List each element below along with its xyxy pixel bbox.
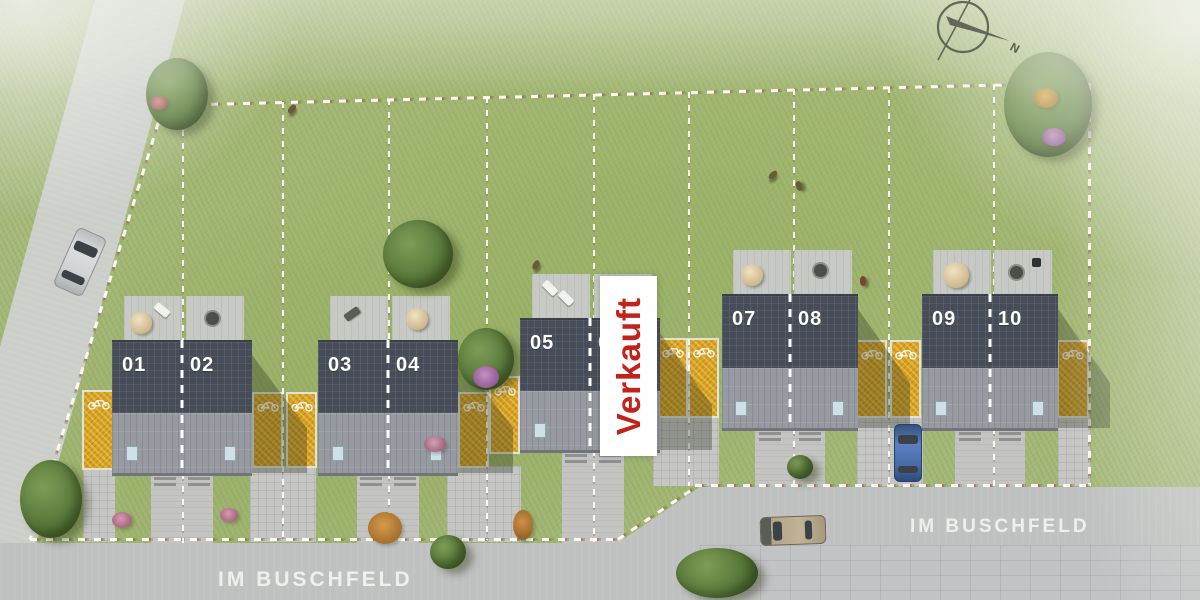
boundary-bottom-right [695,484,1090,487]
compass-north-label: N [1008,40,1022,56]
bicycle-icon [692,345,716,358]
parasol-icon [406,308,428,330]
shrub-orange [513,510,533,540]
flowers-pink [220,508,238,522]
plot-number-07: 07 [732,308,756,331]
plot-number-04: 04 [396,354,420,377]
bush [787,455,813,479]
terrace [124,296,182,340]
parking-pad [447,466,521,542]
lounger-icon [343,306,361,322]
car-blue [894,424,922,482]
car-windshield [898,435,918,444]
tree [383,220,453,288]
tree [20,460,82,538]
plot-divider [593,450,595,542]
plot-number-01: 01 [122,354,146,377]
skylight [735,401,747,416]
terrace [794,250,852,294]
duplex-divider-line [989,294,992,428]
car-rear-window [898,466,918,473]
flowers-pink [112,512,132,528]
skylight [332,446,344,461]
lounger-icon [542,280,559,297]
table-set-icon [814,264,827,277]
tree [146,58,208,130]
plot-divider [486,97,488,540]
terrace [330,296,388,340]
person-figure [860,276,866,286]
driveway [755,426,825,487]
duplex-divider-line [789,294,792,428]
plot-number-10: 10 [998,308,1022,331]
flowers-pink [424,436,446,452]
building-block-01-02: 01 02 [112,340,252,473]
parasol-icon [943,262,969,288]
compass-icon: N [898,0,1048,69]
flowers-red [150,96,168,110]
plot-number-05: 05 [530,332,554,355]
flowers-orange [1034,88,1058,108]
table-set-icon [1010,266,1023,279]
plot-divider [993,428,995,486]
terrace [733,250,791,294]
duplex-divider-line [589,318,592,450]
parasol-icon [741,264,763,286]
duplex-divider-line [181,340,184,473]
boundary-bottom-left [30,538,618,541]
lounger-icon [558,290,575,307]
parasol-icon [130,312,152,334]
street-label-right: IM BUSCHFELD [910,516,1090,538]
skylight [126,446,138,461]
car-rear-window [805,520,813,539]
shrub-orange [368,512,402,544]
plot-divider [388,99,390,342]
skylight [935,401,947,416]
plot-number-08: 08 [798,308,822,331]
skylight [534,423,546,438]
driveway [955,426,1025,487]
terrace [392,296,450,340]
paver-area-bottom-right [700,545,1200,600]
grill-icon [1032,258,1041,267]
plot-divider [182,104,184,342]
duplex-divider-line [387,340,390,473]
bike-shed-strip [84,392,114,468]
site-plan: 01 02 03 04 05 06 07 08 [0,0,1200,600]
building-block-09-10: 09 10 [922,294,1058,428]
car-tan [760,515,827,546]
skylight [1032,401,1044,416]
terrace [532,274,590,318]
bicycle-icon [894,347,918,360]
car-windshield [773,521,783,540]
parking-pad [83,468,115,542]
plot-number-09: 09 [932,308,956,331]
bush [430,535,466,569]
street-label-left: IM BUSCHFELD [218,568,413,592]
plot-number-03: 03 [328,354,352,377]
sold-overlay: Verkauft [600,276,657,456]
terrace [994,250,1052,294]
lounger-icon [153,302,170,318]
flowers-purple [473,366,499,388]
bush [676,548,758,598]
terrace [186,296,244,340]
skylight [832,401,844,416]
terrace [933,250,991,294]
flowers-purple [1042,128,1066,146]
table-set-icon [206,312,219,325]
bicycle-icon [87,397,111,410]
building-block-07-08: 07 08 [722,294,858,428]
plot-number-02: 02 [190,354,214,377]
skylight [224,446,236,461]
car-rear-window [60,269,85,286]
building-block-03-04: 03 04 [318,340,458,473]
car-windshield [73,240,99,259]
plot-divider [282,102,284,540]
sold-label: Verkauft [610,297,648,435]
plot-divider [182,473,184,543]
